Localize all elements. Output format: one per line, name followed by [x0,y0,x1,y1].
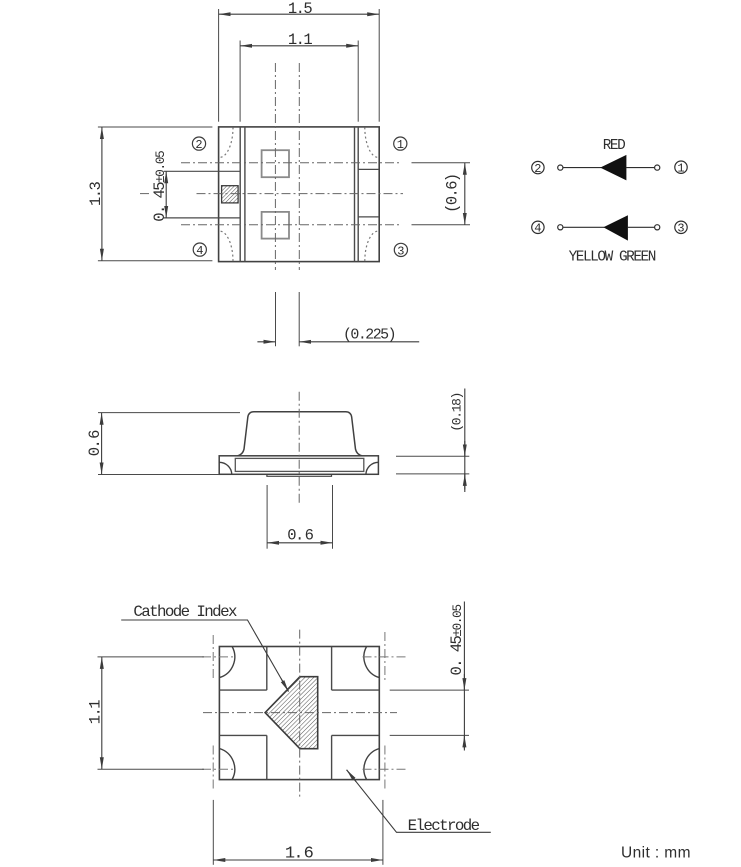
svg-text:(0.18): (0.18) [449,393,464,432]
svg-text:1: 1 [397,138,404,152]
svg-text:3: 3 [397,244,404,258]
svg-text:3: 3 [677,222,684,236]
svg-text:1.6: 1.6 [285,845,314,864]
svg-text:1.1: 1.1 [288,31,313,49]
svg-text:1: 1 [677,162,684,176]
svg-text:(0.6): (0.6) [444,174,462,212]
svg-text:Cathode Index: Cathode Index [133,603,237,621]
svg-text:0. 45±0.05: 0. 45±0.05 [448,605,466,676]
svg-text:1.1: 1.1 [87,700,105,725]
svg-text:2: 2 [195,138,202,152]
svg-text:1.3: 1.3 [87,181,105,206]
svg-text:0.6: 0.6 [86,430,104,456]
svg-text:(0.225): (0.225) [343,327,395,343]
svg-text:1.5: 1.5 [288,0,313,18]
svg-text:4: 4 [534,222,541,236]
svg-text:RED: RED [603,138,625,154]
svg-text:YELLOW GREEN: YELLOW GREEN [569,249,656,265]
svg-text:Unit : mm: Unit : mm [621,845,691,862]
svg-text:0.6: 0.6 [287,527,313,545]
svg-text:0. 45±0.05: 0. 45±0.05 [151,151,169,222]
svg-text:2: 2 [534,162,541,176]
svg-text:4: 4 [196,244,203,258]
